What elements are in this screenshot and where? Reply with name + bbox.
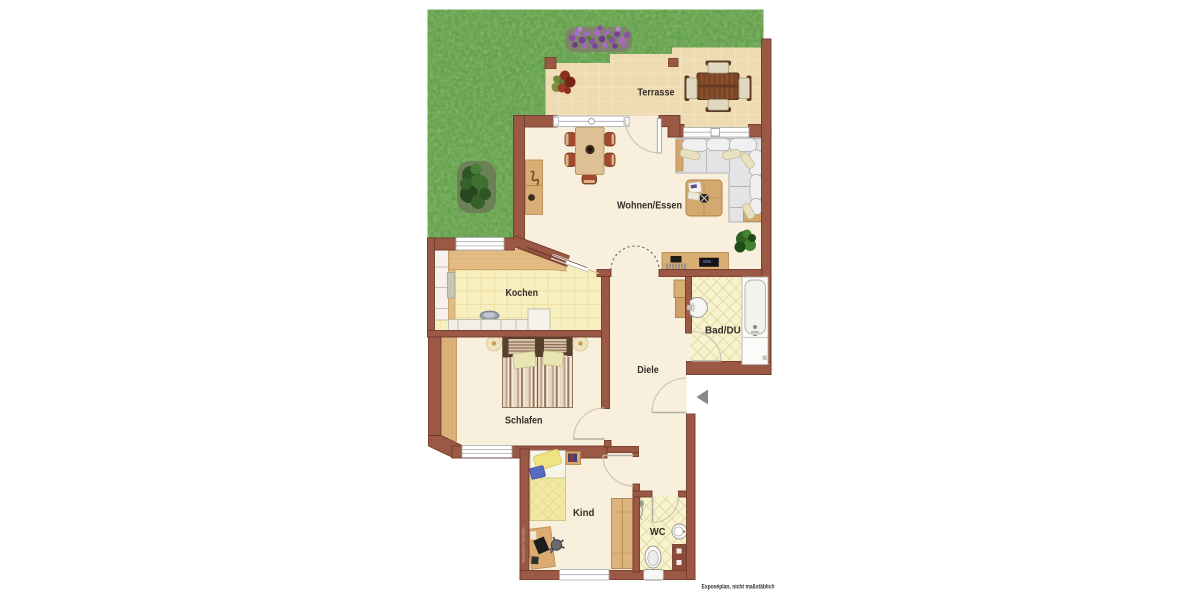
svg-text:Diele: Diele xyxy=(637,364,659,376)
svg-text:Exposéplan, nicht maßstäblich: Exposéplan, nicht maßstäblich xyxy=(702,584,775,591)
svg-text:WC: WC xyxy=(650,526,666,538)
svg-text:Wohnen/Essen: Wohnen/Essen xyxy=(617,200,682,212)
svg-text:Bad/DU: Bad/DU xyxy=(705,324,741,336)
svg-text:Exposeplan Immobilien: Exposeplan Immobilien xyxy=(522,527,526,562)
svg-text:Kochen: Kochen xyxy=(506,287,539,299)
svg-text:Terrasse: Terrasse xyxy=(638,86,675,98)
svg-text:Kind: Kind xyxy=(573,507,594,519)
svg-text:Schlafen: Schlafen xyxy=(505,414,543,426)
